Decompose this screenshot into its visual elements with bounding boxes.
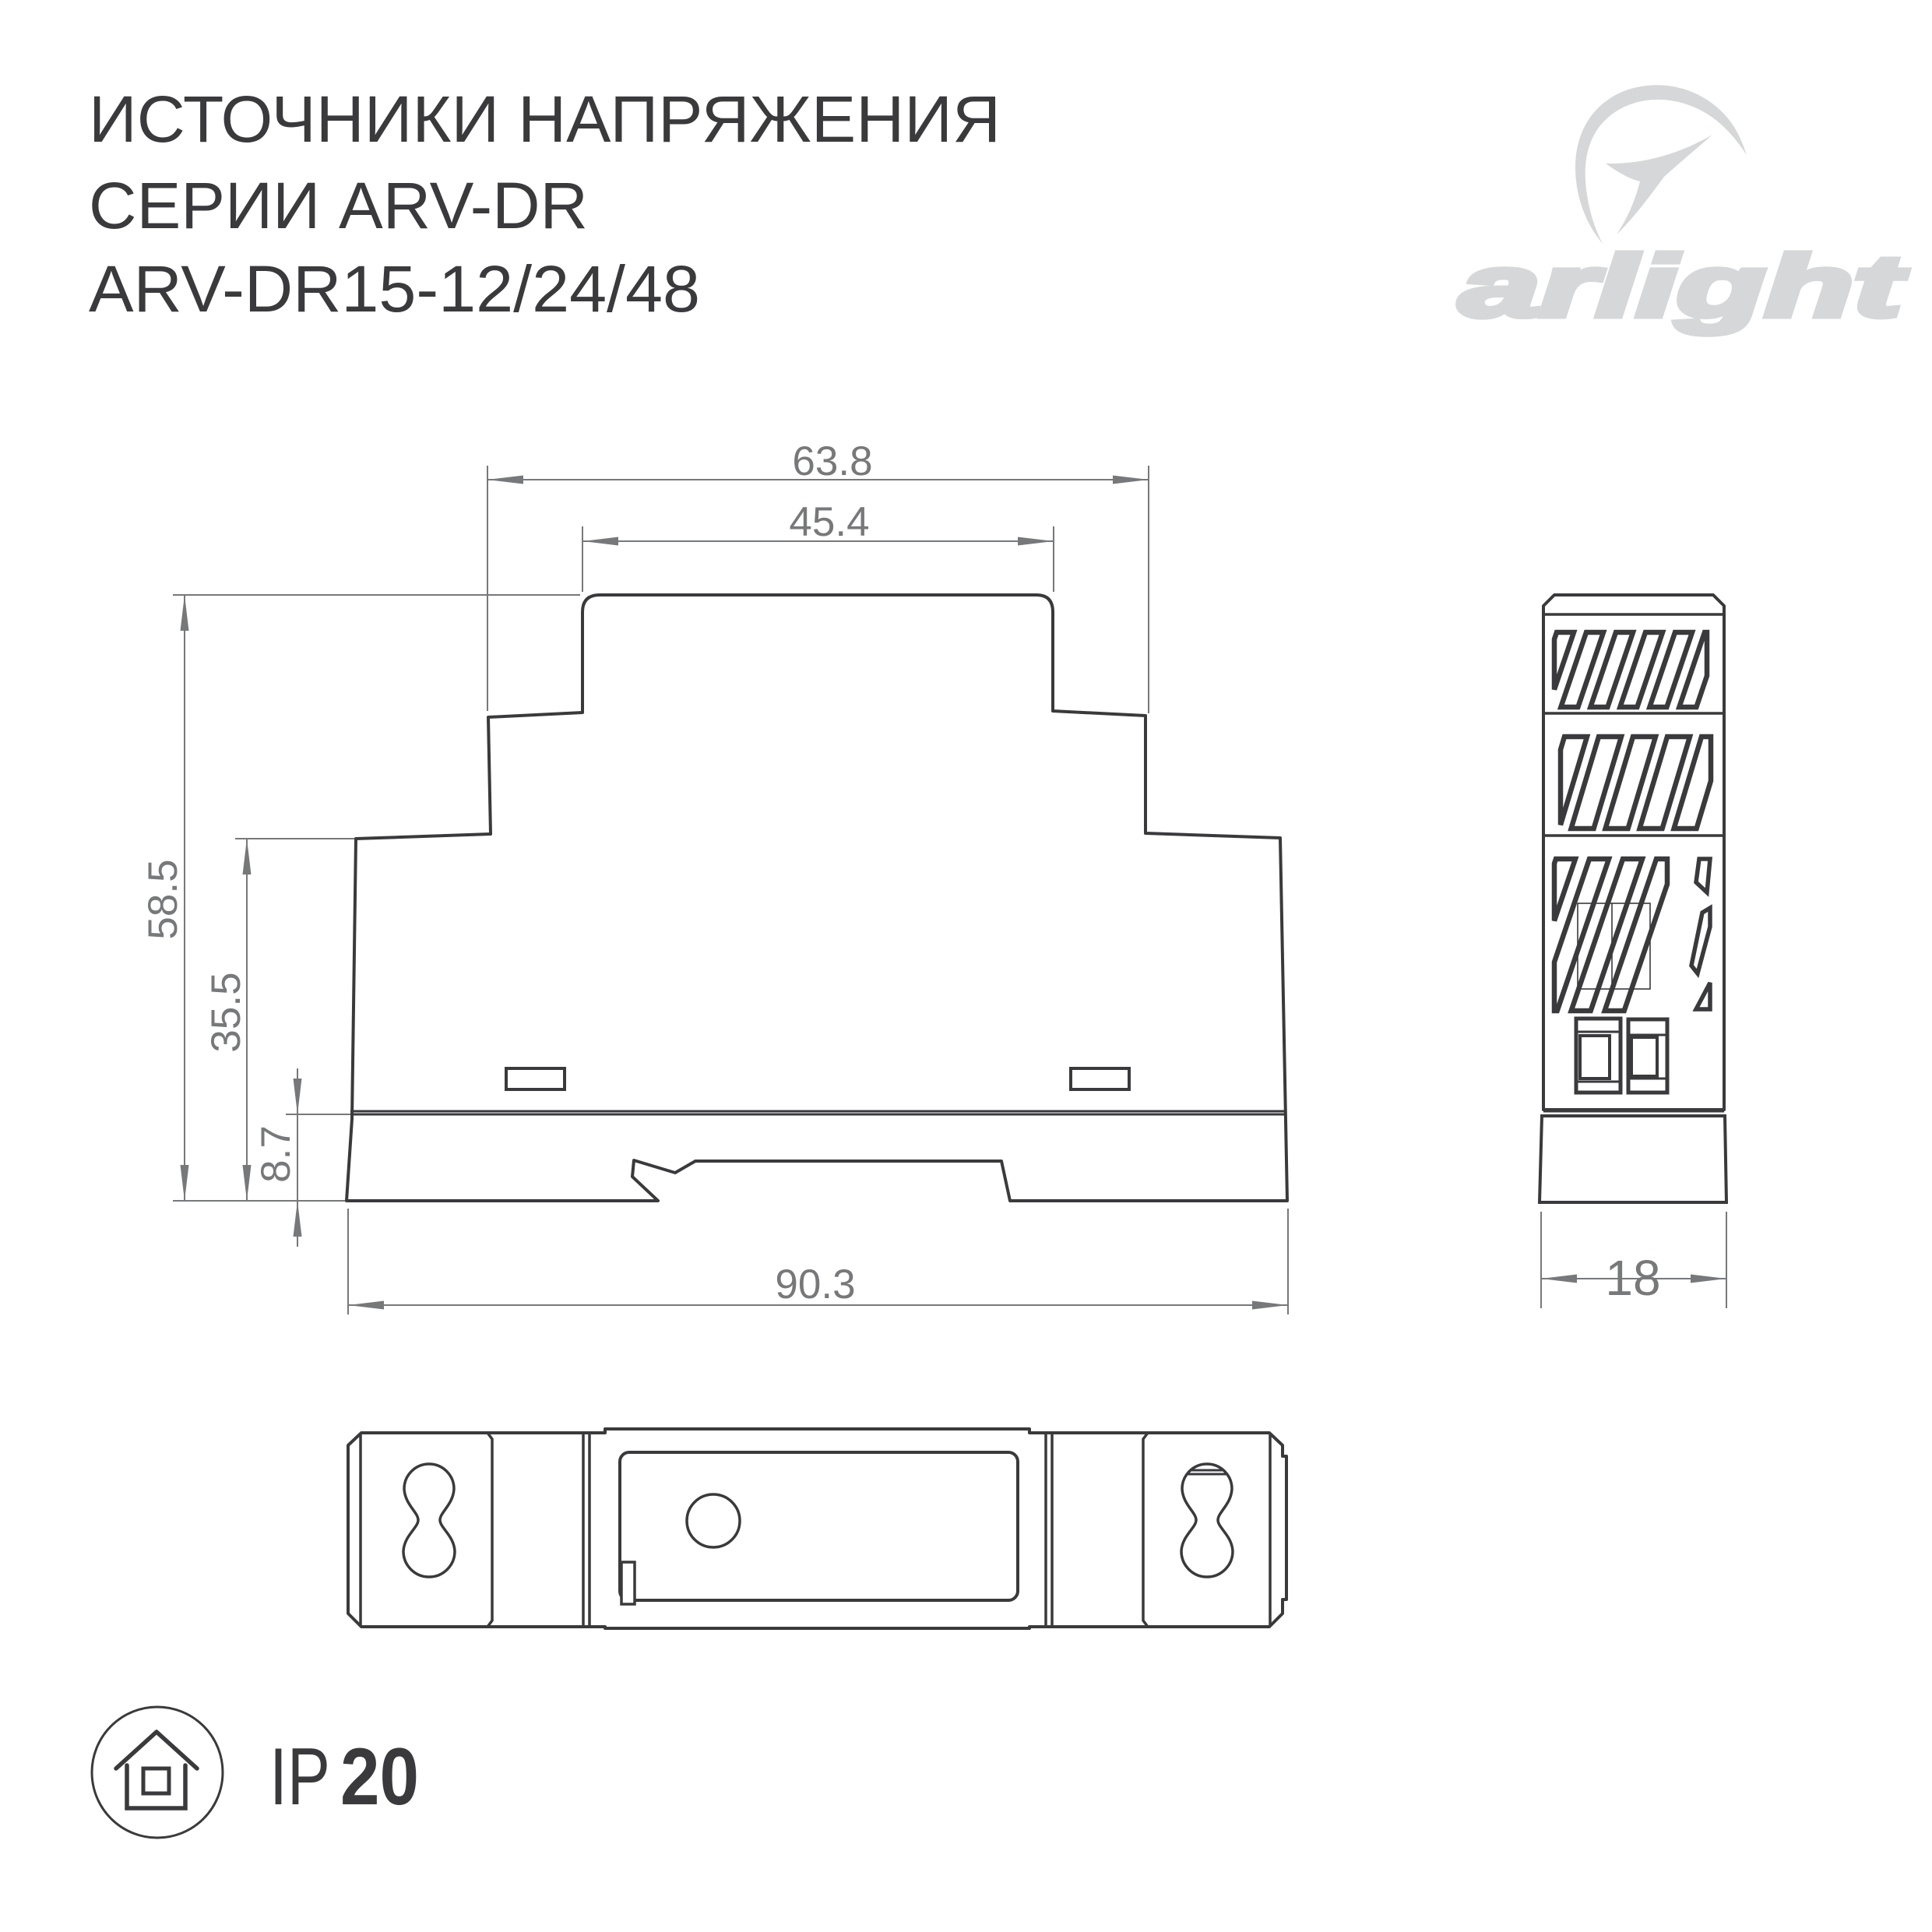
- svg-text:IP: IP: [269, 1732, 330, 1822]
- svg-text:35.5: 35.5: [203, 972, 249, 1052]
- svg-text:8.7: 8.7: [253, 1125, 299, 1183]
- svg-text:63.8: 63.8: [792, 438, 872, 484]
- svg-text:arlight: arlight: [1459, 238, 1908, 335]
- svg-text:СЕРИИ ARV-DR: СЕРИИ ARV-DR: [89, 169, 588, 242]
- svg-text:ARV-DR15-12/24/48: ARV-DR15-12/24/48: [89, 252, 700, 326]
- svg-text:20: 20: [340, 1732, 419, 1822]
- svg-text:ИСТОЧНИКИ НАПРЯЖЕНИЯ: ИСТОЧНИКИ НАПРЯЖЕНИЯ: [89, 83, 1001, 156]
- svg-text:90.3: 90.3: [775, 1262, 855, 1307]
- svg-text:45.4: 45.4: [789, 499, 869, 545]
- svg-text:18: 18: [1605, 1250, 1660, 1306]
- svg-text:58.5: 58.5: [140, 859, 186, 939]
